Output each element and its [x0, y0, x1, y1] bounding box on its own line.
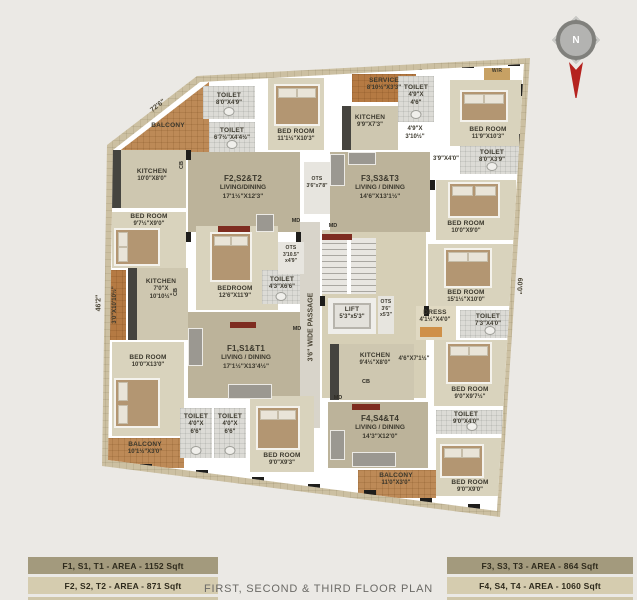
- dimension-label: 46'2": [96, 295, 103, 312]
- bed-icon: [448, 182, 500, 218]
- room-label: LIFT5'3"x5'3": [339, 306, 364, 322]
- room-label: BED ROOM11'1½"X10'3": [277, 128, 314, 144]
- plan-marker: MD: [334, 395, 343, 401]
- bed-icon: [256, 406, 300, 450]
- room-label: KITCHEN9'4½"X8'0": [360, 352, 391, 368]
- room-label: 3'9"X4'0": [433, 156, 459, 164]
- room-label: F1,S1&T1LIVING / DINING17'1½"X13'4½": [221, 344, 271, 371]
- door-jamb-block: [296, 232, 301, 242]
- door-jamb-block: [504, 446, 509, 458]
- room-label: BED ROOM9'7½"X9'0": [130, 213, 167, 229]
- room-label: TOILET4'0"X6'6": [184, 413, 208, 437]
- room-label: TOILET4'0"X6'6": [218, 413, 242, 437]
- tv-unit-icon: [352, 404, 380, 410]
- sofa-icon: [352, 452, 396, 467]
- plan-marker: MD: [293, 326, 302, 332]
- sofa-icon: [188, 328, 203, 366]
- plan-marker: MD: [329, 223, 338, 229]
- tv-unit-icon: [230, 322, 256, 328]
- room-label: F2,S2&T2LIVING/DINING17'1½"X12'3": [220, 174, 266, 201]
- legend-f3-label: F3, S3, T3 - AREA - 864 Sqft: [482, 561, 599, 571]
- room-label: W/R: [492, 68, 502, 75]
- room-label: BED ROOM11'9"X10'3": [469, 126, 506, 142]
- room-label: OTS3'6"x7'8": [306, 176, 327, 189]
- room-label: TOILET4'9"X4'6": [404, 84, 428, 108]
- door-jamb-block: [430, 180, 435, 190]
- room-label: SERVICE8'10½"X3'3": [367, 77, 401, 93]
- compass-north-label: N: [572, 35, 579, 46]
- room-label: BED ROOM15'1½"X10'0": [447, 289, 485, 305]
- door-jamb-block: [186, 232, 191, 242]
- legend-f4-label: F4, S4, T4 - AREA - 1060 Sqft: [479, 581, 601, 591]
- room-label: KITCHEN9'9"X7'3": [355, 114, 385, 130]
- bed-icon: [444, 248, 492, 288]
- door-jamb-block: [320, 296, 325, 306]
- plan-marker: MD: [292, 218, 301, 224]
- tv-unit-icon: [322, 234, 352, 240]
- room-label: 4'9"X3'10½": [405, 126, 424, 142]
- room-label: OTS3'6"x5'3": [380, 299, 392, 319]
- page-title: FIRST, SECOND & THIRD FLOOR PLAN: [204, 583, 433, 595]
- tv-unit-icon: [218, 226, 250, 232]
- bed-icon: [460, 90, 508, 122]
- room-label: TOILET4'3"X6'6": [269, 276, 295, 292]
- compass-circle-icon: N: [556, 20, 596, 60]
- bed-icon: [446, 342, 492, 384]
- room-label: TOILET9'0"X4'0": [453, 411, 479, 427]
- plan-marker: CB: [179, 161, 185, 169]
- room-label: F4,S4&T4LIVING / DINING14'3"X12'0": [355, 414, 405, 441]
- room-label: BED ROOM9'0"X9'3": [263, 452, 300, 468]
- sofa-icon: [330, 430, 345, 460]
- room-label: KITCHEN10'0"X8'0": [137, 168, 167, 184]
- room-label: TOILET8'0"X3'9": [479, 149, 505, 165]
- sofa-icon: [228, 384, 272, 399]
- room-label: BALCONY11'0"X3'0": [379, 472, 413, 488]
- legend-f1-label: F1, S1, T1 - AREA - 1152 Sqft: [62, 561, 183, 571]
- room-label: BEDROOM12'6"X11'9": [217, 285, 252, 301]
- sofa-icon: [348, 152, 376, 165]
- stair-area: [322, 238, 376, 294]
- room-label: DRESS4'1½"X4'0": [420, 309, 451, 325]
- room-label: BED ROOM9'0"X9'7½": [451, 386, 488, 402]
- legend-f3-area: F3, S3, T3 - AREA - 864 Sqft: [447, 557, 633, 574]
- room-label: OTS3'10.5"x4'9": [283, 245, 299, 265]
- legend-f2-label: F2, S2, T2 - AREA - 871 Sqft: [65, 581, 182, 591]
- room-label: 4'6"X7'1½": [399, 356, 430, 364]
- door-jamb-block: [186, 150, 191, 160]
- door-jamb-block: [501, 492, 506, 504]
- plan-marker: CB: [362, 379, 370, 385]
- legend-f2-area: F2, S2, T2 - AREA - 871 Sqft: [28, 577, 218, 594]
- dimension-label: 60'0": [515, 277, 523, 294]
- dimension-label: 3'6" WIDE PASSAGE: [308, 293, 315, 362]
- room-label: TOILET7'3"X4'0": [475, 313, 501, 329]
- plan-marker: CB: [173, 288, 179, 296]
- room-label: TOILET6'7½"X4'4½": [214, 127, 250, 143]
- bed-icon: [440, 444, 484, 478]
- room-label: TOILET8'0"X4'9": [216, 92, 242, 108]
- room-label: BALCONY10'1½"X3'0": [128, 441, 162, 457]
- room-label: BED ROOM10'0"X9'0": [447, 220, 484, 236]
- sofa-icon: [330, 154, 345, 186]
- floor-plan-page: BALCONYTOILET8'0"X4'9"TOILET6'7½"X4'4½"B…: [0, 0, 637, 600]
- bed-icon: [274, 84, 320, 126]
- room-label: F3,S3&T3LIVING / DINING14'6"X13'1½": [355, 174, 405, 201]
- north-compass: N: [552, 16, 600, 100]
- compass-needle-icon: [569, 62, 583, 98]
- sofa-icon: [256, 214, 274, 232]
- bed-icon: [210, 232, 252, 282]
- legend-f4-area: F4, S4, T4 - AREA - 1060 Sqft: [447, 577, 633, 594]
- room-label: BED ROOM9'0"X9'0": [451, 479, 488, 495]
- bed-icon: [114, 378, 160, 428]
- balcony-tri-area: [113, 82, 209, 156]
- bed-icon: [114, 228, 160, 266]
- room-label: BED ROOM10'0"X13'0": [129, 354, 166, 370]
- legend-f1-area: F1, S1, T1 - AREA - 1152 Sqft: [28, 557, 218, 574]
- room-label: BALCONY: [151, 122, 185, 130]
- room-label: KITCHEN7'0"X10'10½": [146, 278, 176, 302]
